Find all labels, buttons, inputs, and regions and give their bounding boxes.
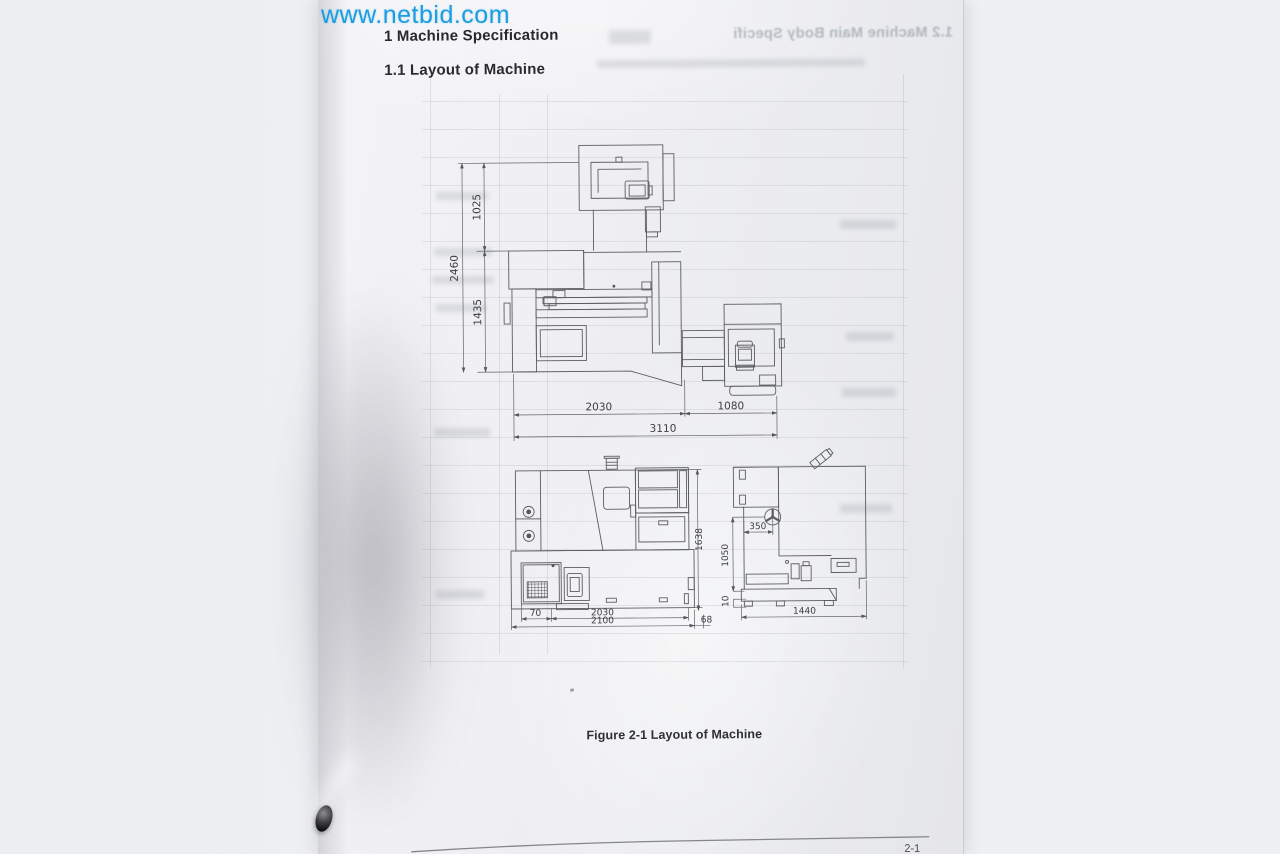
dim-label-depth: 1440	[793, 607, 816, 617]
page-number: 2-1	[904, 843, 920, 854]
top-view-dimensions: 2460 1025 1435 2030 1080 3110	[448, 161, 777, 442]
dim-label-main-width: 2030	[585, 401, 612, 413]
dim-label-right-width: 1080	[717, 400, 744, 412]
machine-front-view-drawing: 1638 70 2030 2100 68	[495, 454, 716, 646]
dim-label-wheel-offset: 350	[749, 522, 767, 532]
bleed-through-artifact	[597, 58, 865, 68]
figure-caption: Figure 2-1 Layout of Machine	[586, 727, 762, 742]
dim-label-foot-height: 10	[721, 595, 731, 607]
machine-side-view-drawing: 350 1050 10 1440	[715, 448, 896, 639]
dim-label-side-height: 1050	[721, 544, 731, 567]
dim-label-front-total-width: 2100	[591, 616, 614, 626]
photo-of-manual-page: 1 Machine Specification 1.1 Layout of Ma…	[0, 0, 1280, 854]
page-content: 1 Machine Specification 1.1 Layout of Ma…	[0, 0, 1280, 854]
dim-label-front-left-offset: 70	[530, 609, 542, 619]
paper-speck	[570, 688, 575, 692]
side-view-dimensions: 350 1050 10 1440	[721, 516, 867, 620]
netbid-watermark: www.netbid.com	[321, 1, 510, 30]
dim-label-lower-height: 1435	[472, 299, 484, 326]
dim-label-total-height: 2460	[449, 255, 461, 282]
machine-body-outline	[504, 250, 682, 387]
dim-label-upper-height: 1025	[471, 194, 483, 221]
machine-top-view-drawing: 2460 1025 1435 2030 1080 3110	[428, 139, 811, 462]
footer-rule	[403, 831, 943, 854]
dim-label-front-right-gap: 68	[701, 615, 713, 625]
bleed-through-artifact	[609, 30, 651, 44]
stack-light	[810, 448, 834, 469]
bleed-through-heading: 1.2 Machine Main Body Specifi	[605, 25, 953, 44]
dim-label-front-height: 1638	[695, 528, 705, 551]
dim-label-total-width: 3110	[650, 423, 677, 435]
gantry-loader-outline	[579, 145, 675, 253]
subsection-heading: 1.1 Layout of Machine	[384, 61, 545, 79]
tailstock-unit-outline	[682, 304, 785, 396]
front-view-outline	[510, 456, 694, 610]
